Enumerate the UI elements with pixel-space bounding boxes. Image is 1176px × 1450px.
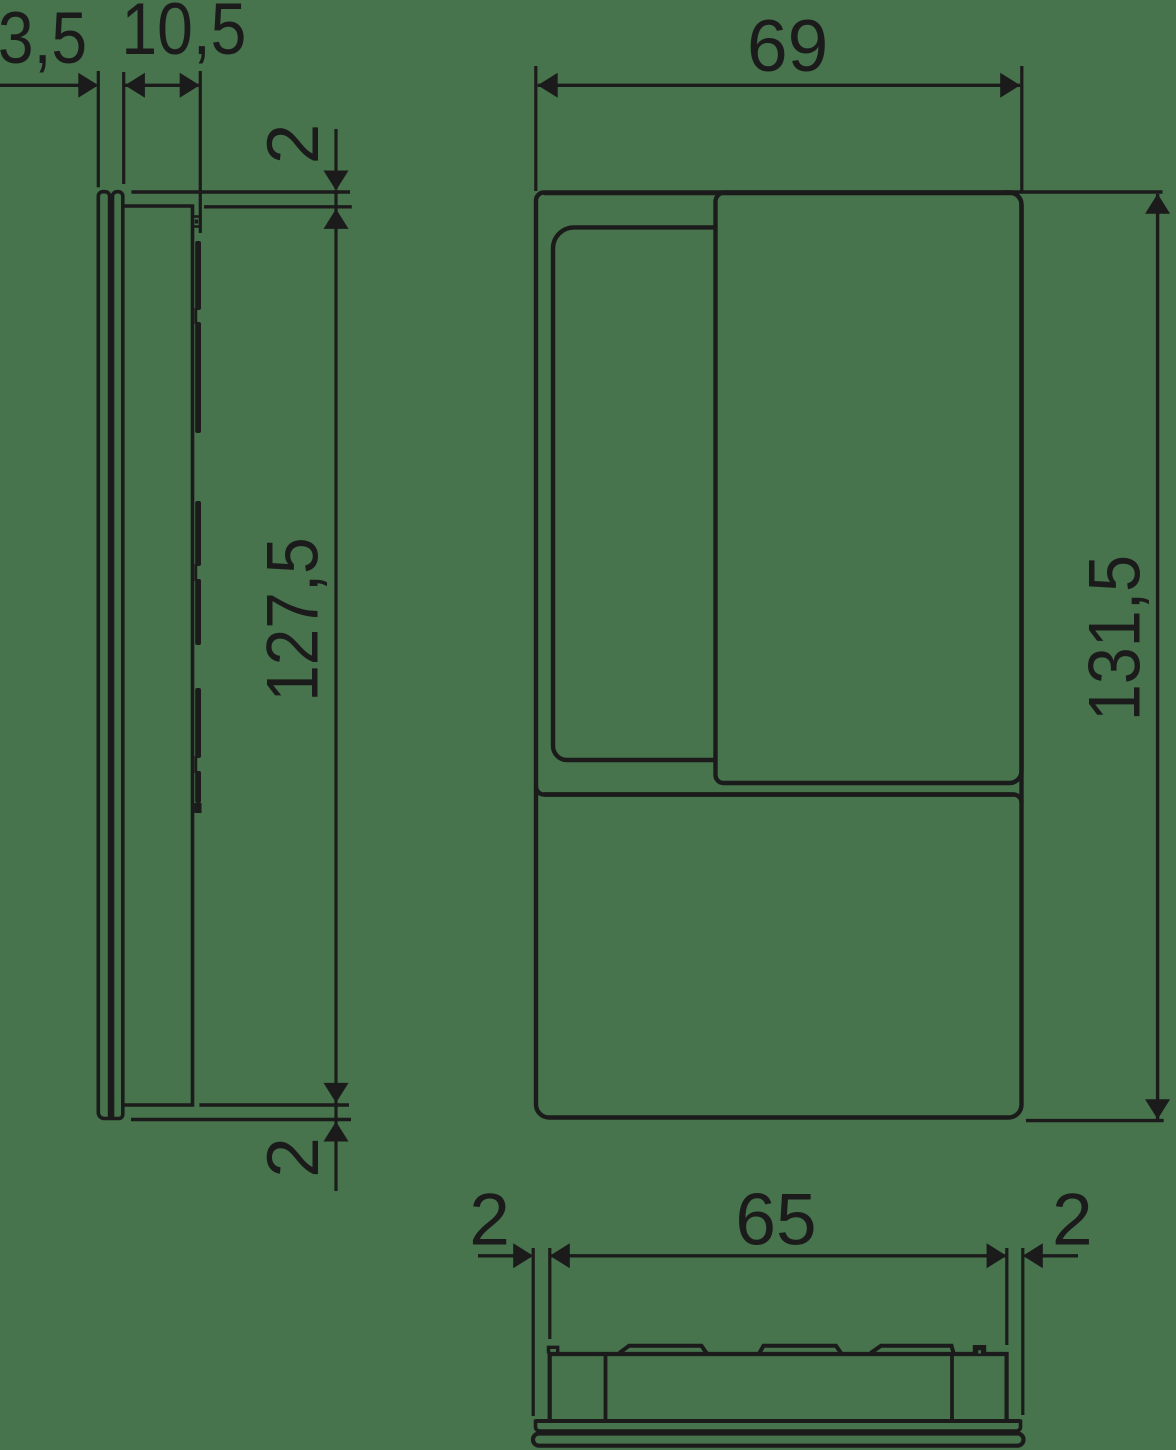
svg-text:2: 2 (1052, 1180, 1093, 1261)
svg-text:131,5: 131,5 (1074, 555, 1156, 721)
svg-text:2: 2 (469, 1180, 510, 1261)
svg-text:10,5: 10,5 (121, 0, 246, 70)
svg-text:65: 65 (735, 1180, 816, 1261)
svg-text:2: 2 (253, 1137, 334, 1178)
svg-text:69: 69 (747, 6, 828, 87)
svg-text:2: 2 (253, 124, 334, 165)
svg-text:127,5: 127,5 (251, 537, 333, 701)
svg-text:3,5: 3,5 (0, 0, 87, 79)
